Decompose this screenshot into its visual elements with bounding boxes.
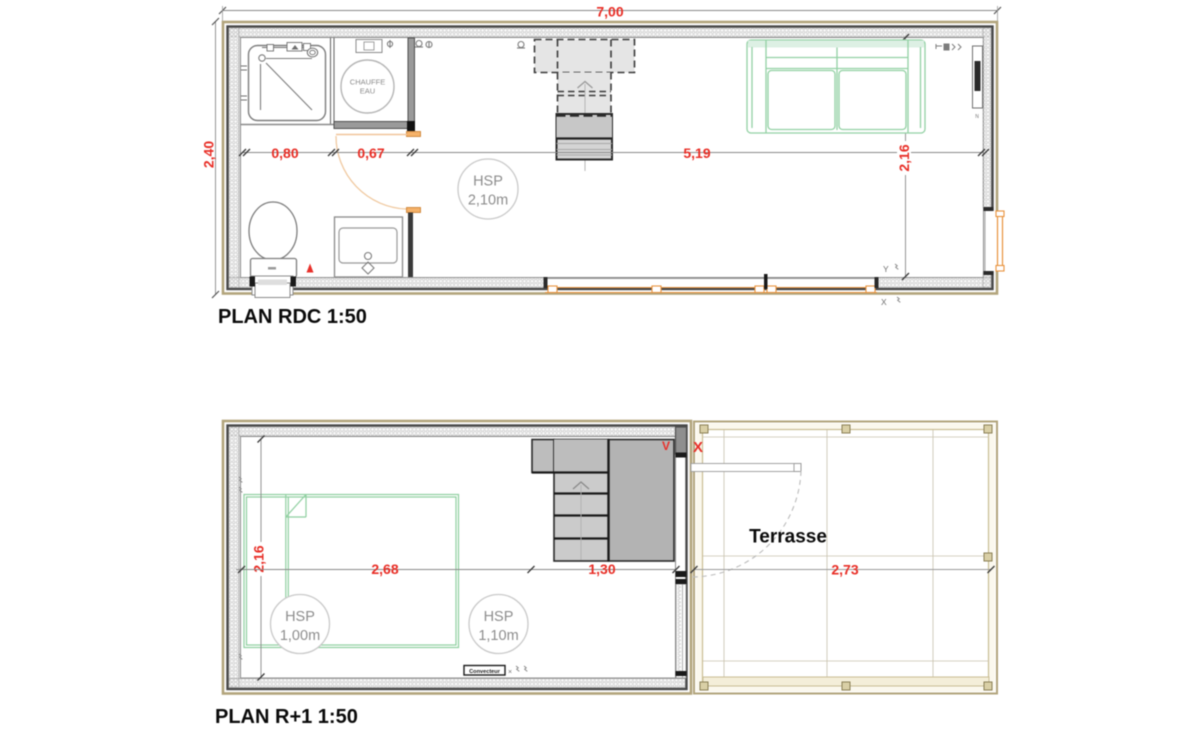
svg-text:7,00: 7,00 xyxy=(596,4,623,20)
svg-text:5,19: 5,19 xyxy=(683,145,710,161)
svg-text:Convecteur: Convecteur xyxy=(469,669,501,675)
svg-text:N: N xyxy=(975,114,979,120)
svg-text:2,68: 2,68 xyxy=(371,561,398,577)
svg-text:EAU: EAU xyxy=(360,87,375,96)
svg-text:V: V xyxy=(662,439,670,453)
svg-text:PLAN RDC 1:50: PLAN RDC 1:50 xyxy=(218,306,367,328)
svg-text:CHAUFFE: CHAUFFE xyxy=(350,78,385,87)
svg-text:2,16: 2,16 xyxy=(251,545,267,572)
svg-text:X: X xyxy=(881,297,887,307)
svg-text:0,67: 0,67 xyxy=(357,145,384,161)
svg-text:1,30: 1,30 xyxy=(588,561,615,577)
svg-text:HSP: HSP xyxy=(484,609,514,625)
svg-text:1,10m: 1,10m xyxy=(478,628,518,644)
svg-text:HSP: HSP xyxy=(473,174,503,190)
svg-text:Y: Y xyxy=(883,264,889,274)
svg-text:X: X xyxy=(693,439,703,456)
svg-text:2,10m: 2,10m xyxy=(468,193,508,209)
svg-text:×: × xyxy=(508,669,512,676)
svg-text:1,00m: 1,00m xyxy=(280,628,320,644)
svg-text:2,16: 2,16 xyxy=(896,144,912,171)
svg-text:0,80: 0,80 xyxy=(271,145,298,161)
svg-text:HSP: HSP xyxy=(285,609,315,625)
svg-text:2,73: 2,73 xyxy=(831,562,858,578)
svg-text:Terrasse: Terrasse xyxy=(749,527,827,548)
svg-text:PLAN R+1 1:50: PLAN R+1 1:50 xyxy=(215,706,358,728)
svg-text:2,40: 2,40 xyxy=(201,141,217,168)
